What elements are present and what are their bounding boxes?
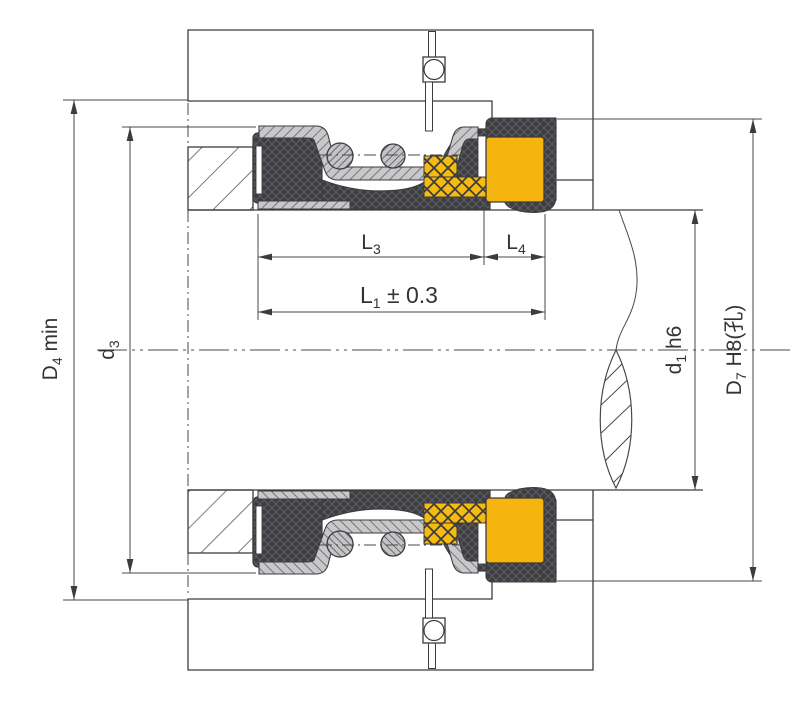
seal-face-gap	[478, 136, 486, 177]
dim-label-D7: D7 H8(孔)	[723, 305, 749, 396]
collar-notch	[256, 146, 262, 194]
shaft	[188, 210, 703, 492]
shaft-break-curve	[616, 210, 637, 350]
primary-ring-lower	[424, 177, 486, 197]
dim-label-d3: d3	[96, 340, 122, 360]
seal-assembly-bottom	[253, 488, 556, 582]
stationary-seat	[486, 137, 544, 202]
pin-slot	[429, 32, 436, 59]
shaft-shoulder-bottom	[188, 490, 253, 553]
dim-label-L1: L1 ± 0.3	[360, 282, 438, 311]
dimension-L3-L4-L1: L3 L4 L1 ± 0.3	[258, 204, 545, 320]
dim-label-D4: D4 min	[39, 318, 65, 381]
retainer-foot	[258, 201, 350, 209]
seal-assembly-top	[253, 118, 556, 212]
spring-coil-section-2	[381, 144, 405, 168]
pin-circle	[424, 60, 444, 80]
anti-rotation-pin-top	[423, 32, 445, 132]
shaft-shoulder-top	[188, 147, 253, 210]
spring-coil-section-1	[327, 143, 353, 169]
drawing-canvas: D4 min d3 L3 L4 L1 ± 0.3 d1 h6	[0, 0, 800, 711]
dim-label-L3: L3	[361, 231, 381, 257]
primary-ring-upper	[424, 156, 457, 177]
dim-label-L4: L4	[506, 231, 526, 257]
pin-shaft	[426, 82, 433, 131]
mechanical-seal-drawing: D4 min d3 L3 L4 L1 ± 0.3 d1 h6	[0, 0, 800, 711]
drive-collar	[253, 133, 322, 203]
anti-rotation-pin-bottom	[423, 569, 445, 669]
dim-label-d1: d1 h6	[663, 326, 689, 375]
